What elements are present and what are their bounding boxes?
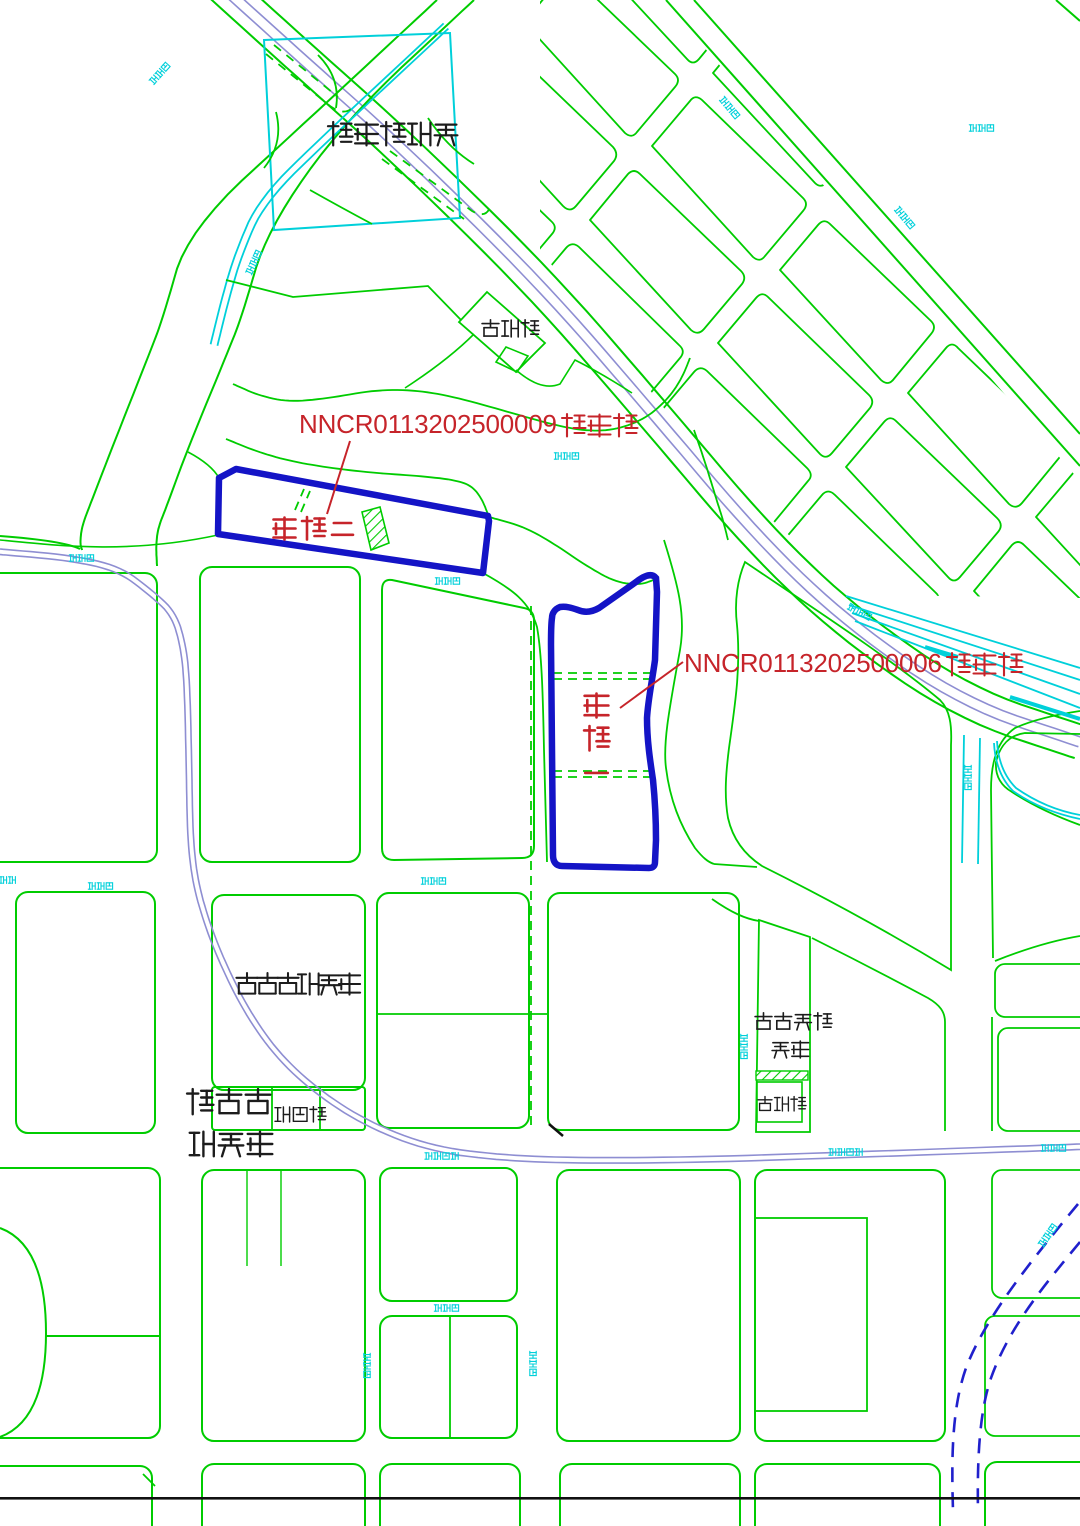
- svg-text:NNCR0113202500009: NNCR0113202500009: [299, 409, 557, 439]
- svg-text:NNCR0113202500006: NNCR0113202500006: [684, 648, 942, 678]
